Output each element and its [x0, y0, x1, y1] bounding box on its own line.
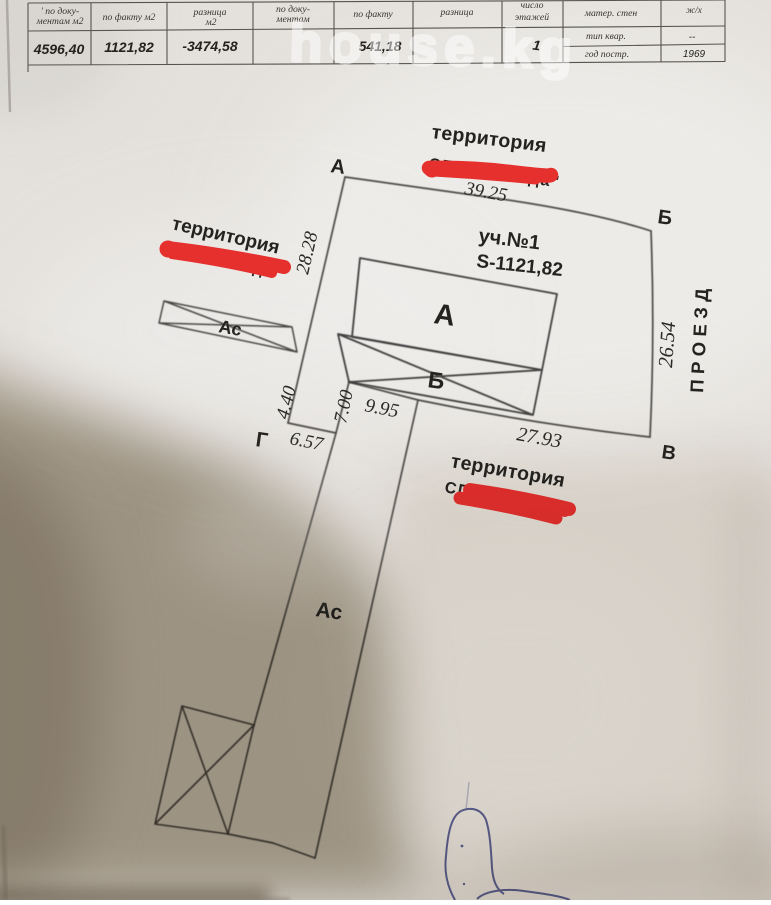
svg-text:26.54: 26.54 — [655, 321, 680, 369]
svg-text:1969: 1969 — [683, 49, 706, 60]
svg-text:А: А — [329, 155, 346, 179]
svg-text:Б: Б — [656, 206, 673, 230]
svg-text:год постр.: год постр. — [585, 49, 629, 60]
svg-text:--: -- — [689, 32, 696, 43]
svg-text:ментам м2: ментам м2 — [36, 16, 84, 27]
svg-text:ж/х: ж/х — [686, 5, 703, 16]
svg-text:по факту м2: по факту м2 — [103, 12, 156, 23]
svg-text:м2: м2 — [204, 17, 216, 28]
svg-text:тип квар.: тип квар. — [586, 31, 626, 42]
svg-text:house.kg: house.kg — [289, 13, 580, 81]
svg-text:А: А — [432, 298, 457, 333]
svg-text:1121,82: 1121,82 — [104, 39, 154, 55]
svg-text:-3474,58: -3474,58 — [182, 38, 237, 54]
svg-text:матер. стен: матер. стен — [584, 8, 638, 19]
svg-text:Ас: Ас — [217, 316, 243, 340]
svg-text:число: число — [521, 0, 544, 11]
svg-text:4596,40: 4596,40 — [33, 41, 85, 57]
